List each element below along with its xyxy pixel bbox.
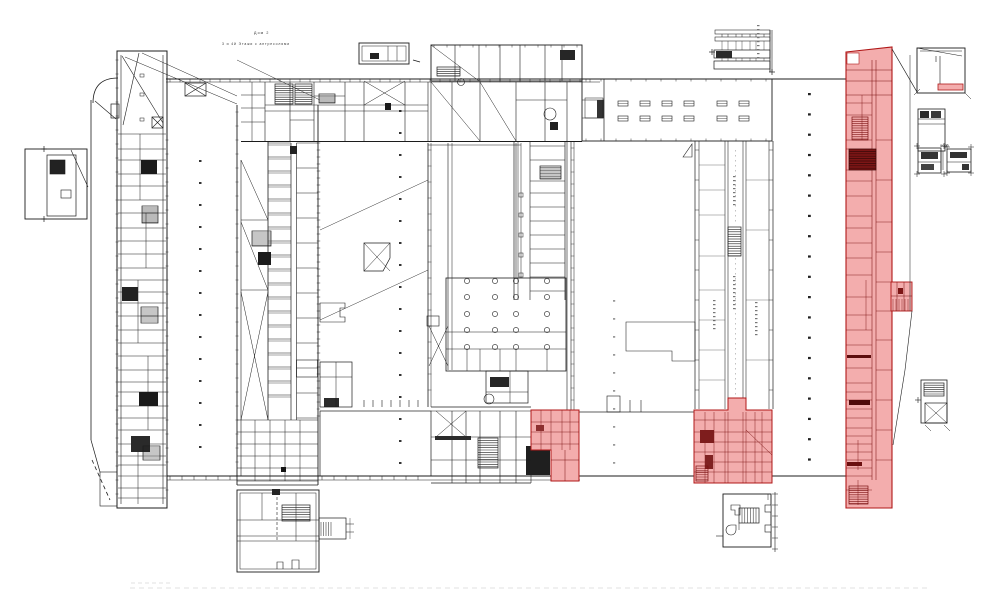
svg-text:3 и 4й Этажи с антресолями: 3 и 4й Этажи с антресолями	[222, 42, 290, 46]
svg-text:Дом 2: Дом 2	[254, 31, 269, 35]
svg-text:0000: 0000	[940, 143, 950, 148]
